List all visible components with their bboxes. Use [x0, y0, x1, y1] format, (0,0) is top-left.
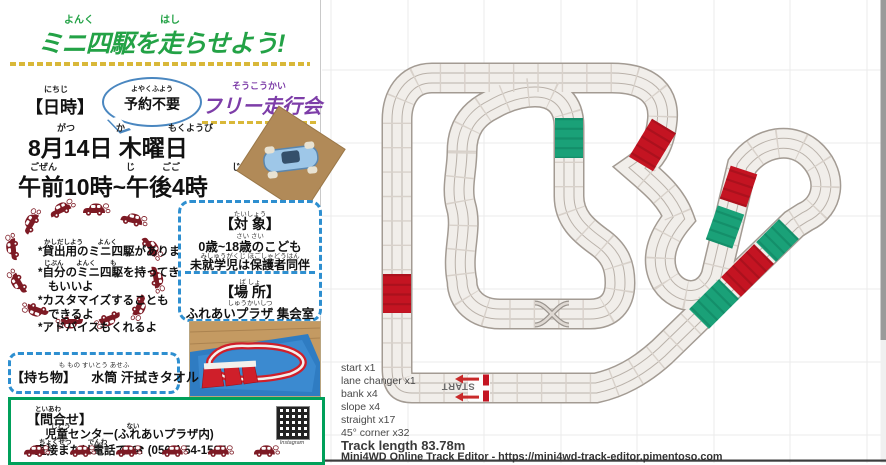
start-label: START: [441, 380, 474, 391]
event-flyer: よんく はし ミニ四駆を走らせよう! にちじ 【日時】 よやくふよう 予約不要 …: [0, 0, 321, 463]
qr-caption: Instagram: [276, 440, 308, 446]
track-photo: [190, 322, 320, 396]
editor-credit-url: Mini4WD Online Track Editor - https://mi…: [341, 451, 723, 463]
target-place-box: たいしょう 【対 象】 さい さい 0歳~18歳のこども みしゅうがくじ ほごし…: [178, 200, 322, 322]
place-line: ふれあいプラザ 集会室: [181, 303, 319, 322]
start-bar-top: [483, 375, 489, 386]
items-text: 水筒 汗拭きタオル: [91, 370, 199, 385]
scrollbar-thumb[interactable]: [881, 0, 886, 340]
flyer-title: ミニ四駆を走らせよう!: [10, 24, 312, 60]
bubble-furigana: よやくふよう: [104, 84, 200, 94]
event-name: フリー走行会: [202, 90, 322, 119]
bubble-text: 予約不要: [104, 94, 200, 114]
datetime-label: 【日時】: [26, 93, 94, 118]
items-box: も もの すいとう あせふ 【持ち物】 水筒 汗拭きタオル: [8, 352, 180, 394]
car-row-decoration: [21, 444, 281, 459]
box-divider: [185, 271, 315, 274]
start-bar-bottom: [483, 391, 489, 402]
event-date: 8月14日 木曜日: [28, 129, 188, 163]
instagram-qr-code: [276, 406, 310, 440]
items-label: 【持ち物】: [11, 370, 76, 385]
track-piece-outline: [397, 78, 826, 388]
note-line-6: *アドバイスもくれるよ: [38, 319, 157, 335]
track-stats-list: start x1 lane changer x1 bank x4 slope x…: [341, 362, 416, 439]
title-underline: [10, 62, 310, 66]
